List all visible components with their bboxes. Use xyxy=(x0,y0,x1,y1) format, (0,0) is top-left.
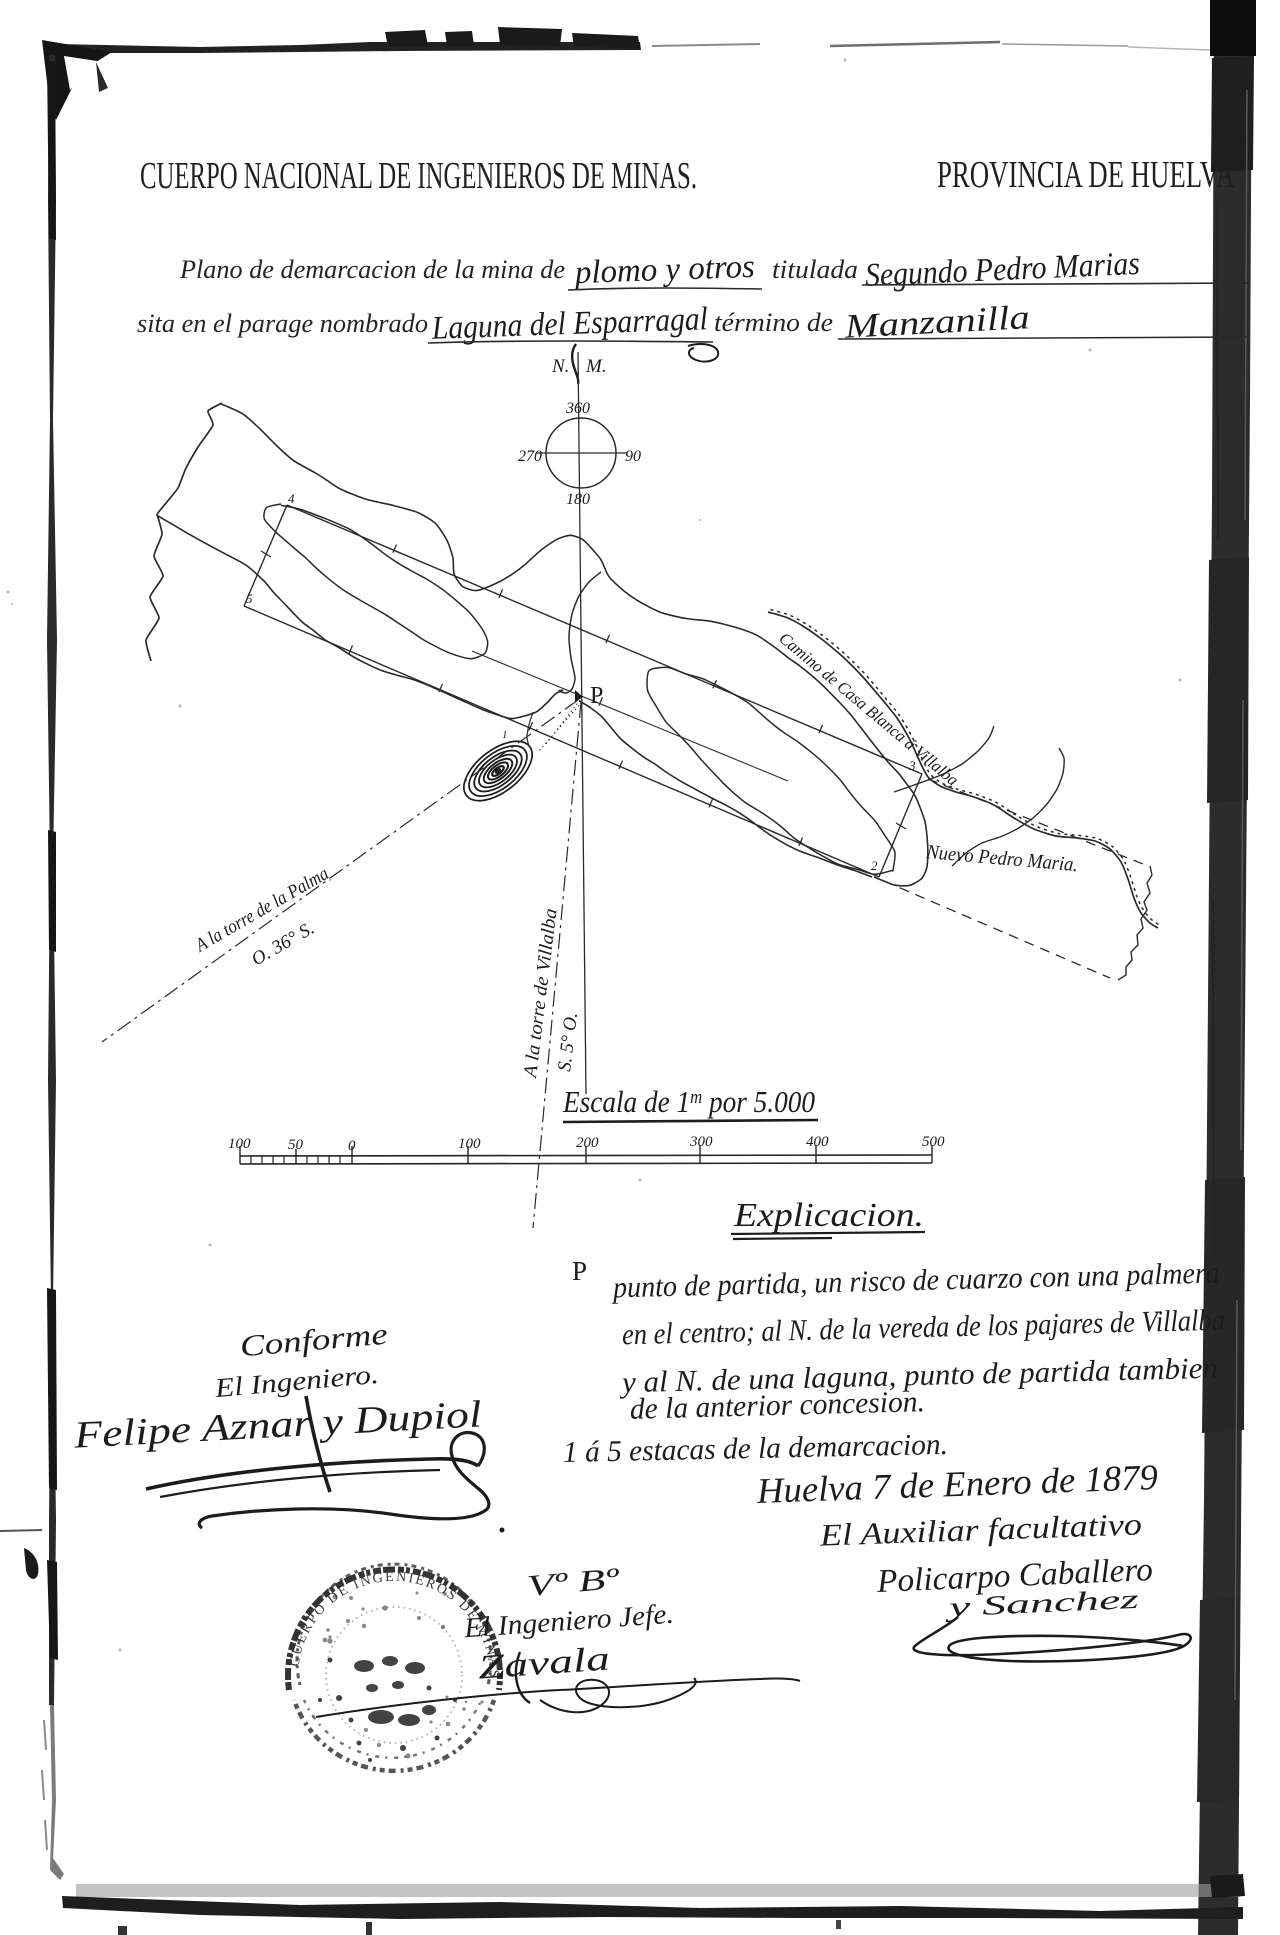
svg-text:Laguna del Esparragal: Laguna del Esparragal xyxy=(430,301,708,347)
svg-text:180: 180 xyxy=(566,491,590,508)
svg-text:N.: N. xyxy=(551,356,569,377)
svg-text:en el centro; al N. de la vere: en el centro; al N. de la vereda de los … xyxy=(622,1304,1226,1352)
svg-text:Vº Bº: Vº Bº xyxy=(526,1562,622,1603)
svg-text:300: 300 xyxy=(689,1134,713,1150)
svg-text:El Ingeniero Jefe.: El Ingeniero Jefe. xyxy=(462,1599,675,1645)
svg-text:Huelva 7 de Enero de 1879: Huelva 7 de Enero de 1879 xyxy=(755,1457,1158,1511)
svg-text:de la anterior concesion.: de la anterior concesion. xyxy=(630,1385,926,1426)
svg-text:Felipe Aznar y Dupiol: Felipe Aznar y Dupiol xyxy=(72,1393,483,1456)
svg-text:Explicacion.: Explicacion. xyxy=(733,1197,924,1234)
svg-text:2: 2 xyxy=(871,858,878,873)
svg-text:titulada: titulada xyxy=(772,255,858,284)
svg-text:1: 1 xyxy=(502,729,508,741)
svg-text:PROVINCIA DE HUELVA: PROVINCIA DE HUELVA xyxy=(937,154,1235,196)
svg-text:Segundo Pedro Marias: Segundo Pedro Marias xyxy=(864,246,1140,294)
svg-text:360: 360 xyxy=(565,400,590,417)
svg-text:Plano de demarcacion de la min: Plano de demarcacion de la mina de xyxy=(179,255,565,284)
svg-text:100: 100 xyxy=(458,1136,481,1152)
svg-text:500: 500 xyxy=(922,1134,945,1150)
svg-text:O. 36° S.: O. 36° S. xyxy=(248,918,318,971)
svg-text:término de: término de xyxy=(714,308,833,337)
svg-text:El Auxiliar facultativo: El Auxiliar facultativo xyxy=(818,1506,1142,1552)
svg-text:Nuevo Pedro Maria.: Nuevo Pedro Maria. xyxy=(925,841,1079,876)
svg-text:50: 50 xyxy=(288,1137,304,1153)
svg-text:90: 90 xyxy=(625,448,641,465)
svg-text:CUERPO NACIONAL DE INGENIEROS: CUERPO NACIONAL DE INGENIEROS DE MINAS. xyxy=(140,155,697,197)
svg-text:S. 5° O.: S. 5° O. xyxy=(554,1011,582,1072)
svg-text:270: 270 xyxy=(518,448,542,465)
svg-text:100: 100 xyxy=(228,1136,251,1152)
svg-text:400: 400 xyxy=(806,1134,829,1150)
svg-text:Escala de 1m por 5.000: Escala de 1m por 5.000 xyxy=(562,1084,815,1119)
svg-text:P: P xyxy=(590,683,603,709)
svg-text:punto de partida, un risco de: punto de partida, un risco de cuarzo con… xyxy=(611,1257,1220,1305)
svg-text:5: 5 xyxy=(246,591,253,606)
svg-text:El Ingeniero.: El Ingeniero. xyxy=(213,1359,380,1403)
svg-text:1 á 5 estacas de la demarcacio: 1 á 5 estacas de la demarcacion. xyxy=(563,1428,949,1469)
svg-text:0: 0 xyxy=(348,1138,356,1154)
svg-text:plomo y otros: plomo y otros xyxy=(572,249,755,291)
svg-text:M.: M. xyxy=(585,356,607,377)
svg-text:P: P xyxy=(572,1256,587,1286)
svg-text:Conforme: Conforme xyxy=(239,1318,389,1364)
svg-text:3: 3 xyxy=(908,758,916,773)
svg-text:200: 200 xyxy=(576,1135,599,1151)
svg-text:sita en el parage nombrado: sita en el parage nombrado xyxy=(137,309,428,338)
svg-text:Camino de Casa Blanca á Villal: Camino de Casa Blanca á Villalba xyxy=(775,629,962,790)
svg-text:A la torre de la Palma: A la torre de la Palma xyxy=(190,863,332,957)
svg-text:4: 4 xyxy=(288,491,295,506)
